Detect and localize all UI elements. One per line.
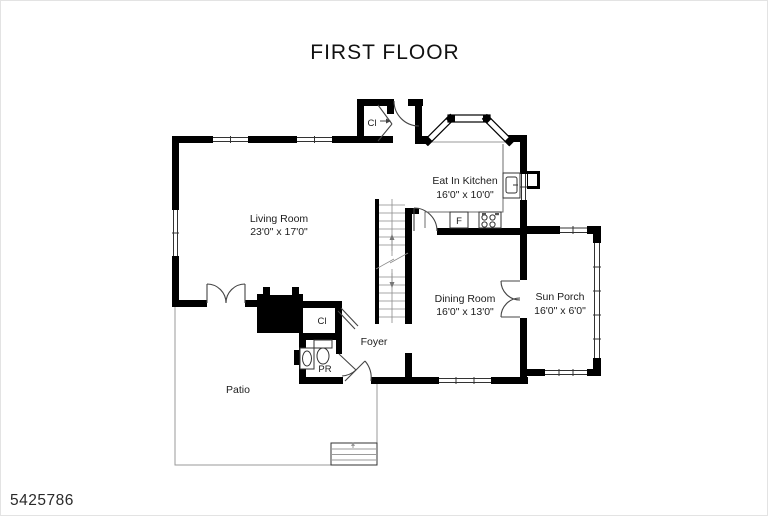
dining-room-dims: 16'0" x 13'0"	[436, 306, 494, 318]
kitchen-sink	[503, 173, 520, 198]
patio-steps	[331, 442, 377, 465]
dining-room-label: Dining Room	[435, 293, 496, 305]
fireplace	[257, 285, 303, 333]
window	[172, 210, 179, 256]
powder-room-door	[339, 354, 356, 376]
sun-porch-dims: 16'0" x 6'0"	[534, 305, 586, 317]
powder-room-label: PR	[318, 364, 331, 375]
window	[593, 243, 601, 358]
refrigerator-label: F	[456, 216, 462, 227]
living-room-dims: 23'0" x 17'0"	[250, 226, 308, 238]
window	[545, 369, 587, 376]
window	[297, 136, 332, 143]
window	[520, 174, 527, 200]
sun-porch-french-doors	[501, 281, 520, 317]
sun-porch-label: Sun Porch	[535, 291, 584, 303]
kitchen-dims: 16'0" x 10'0"	[436, 189, 494, 201]
foyer-closet-label: Cl	[318, 316, 327, 327]
hall-closet-label: Cl	[368, 118, 377, 129]
window	[439, 377, 491, 384]
page-title: FIRST FLOOR	[310, 41, 459, 64]
living-room-label: Living Room	[250, 213, 309, 225]
floor-plan-page: FIRST FLOOR	[0, 0, 768, 516]
bathroom-sink	[300, 348, 314, 369]
toilet	[314, 340, 332, 364]
foyer-label: Foyer	[361, 336, 388, 348]
refrigerator-box: F	[450, 212, 468, 228]
kitchen-label: Eat In Kitchen	[432, 175, 498, 187]
patio-label: Patio	[226, 384, 250, 396]
living-room-french-doors	[207, 284, 245, 303]
staircase	[376, 199, 408, 323]
bay-window	[423, 114, 515, 147]
stove	[479, 212, 501, 228]
floor-plan-svg: FIRST FLOOR	[1, 1, 768, 516]
image-number: 5425786	[10, 492, 74, 509]
window	[213, 136, 248, 143]
window	[560, 226, 587, 234]
